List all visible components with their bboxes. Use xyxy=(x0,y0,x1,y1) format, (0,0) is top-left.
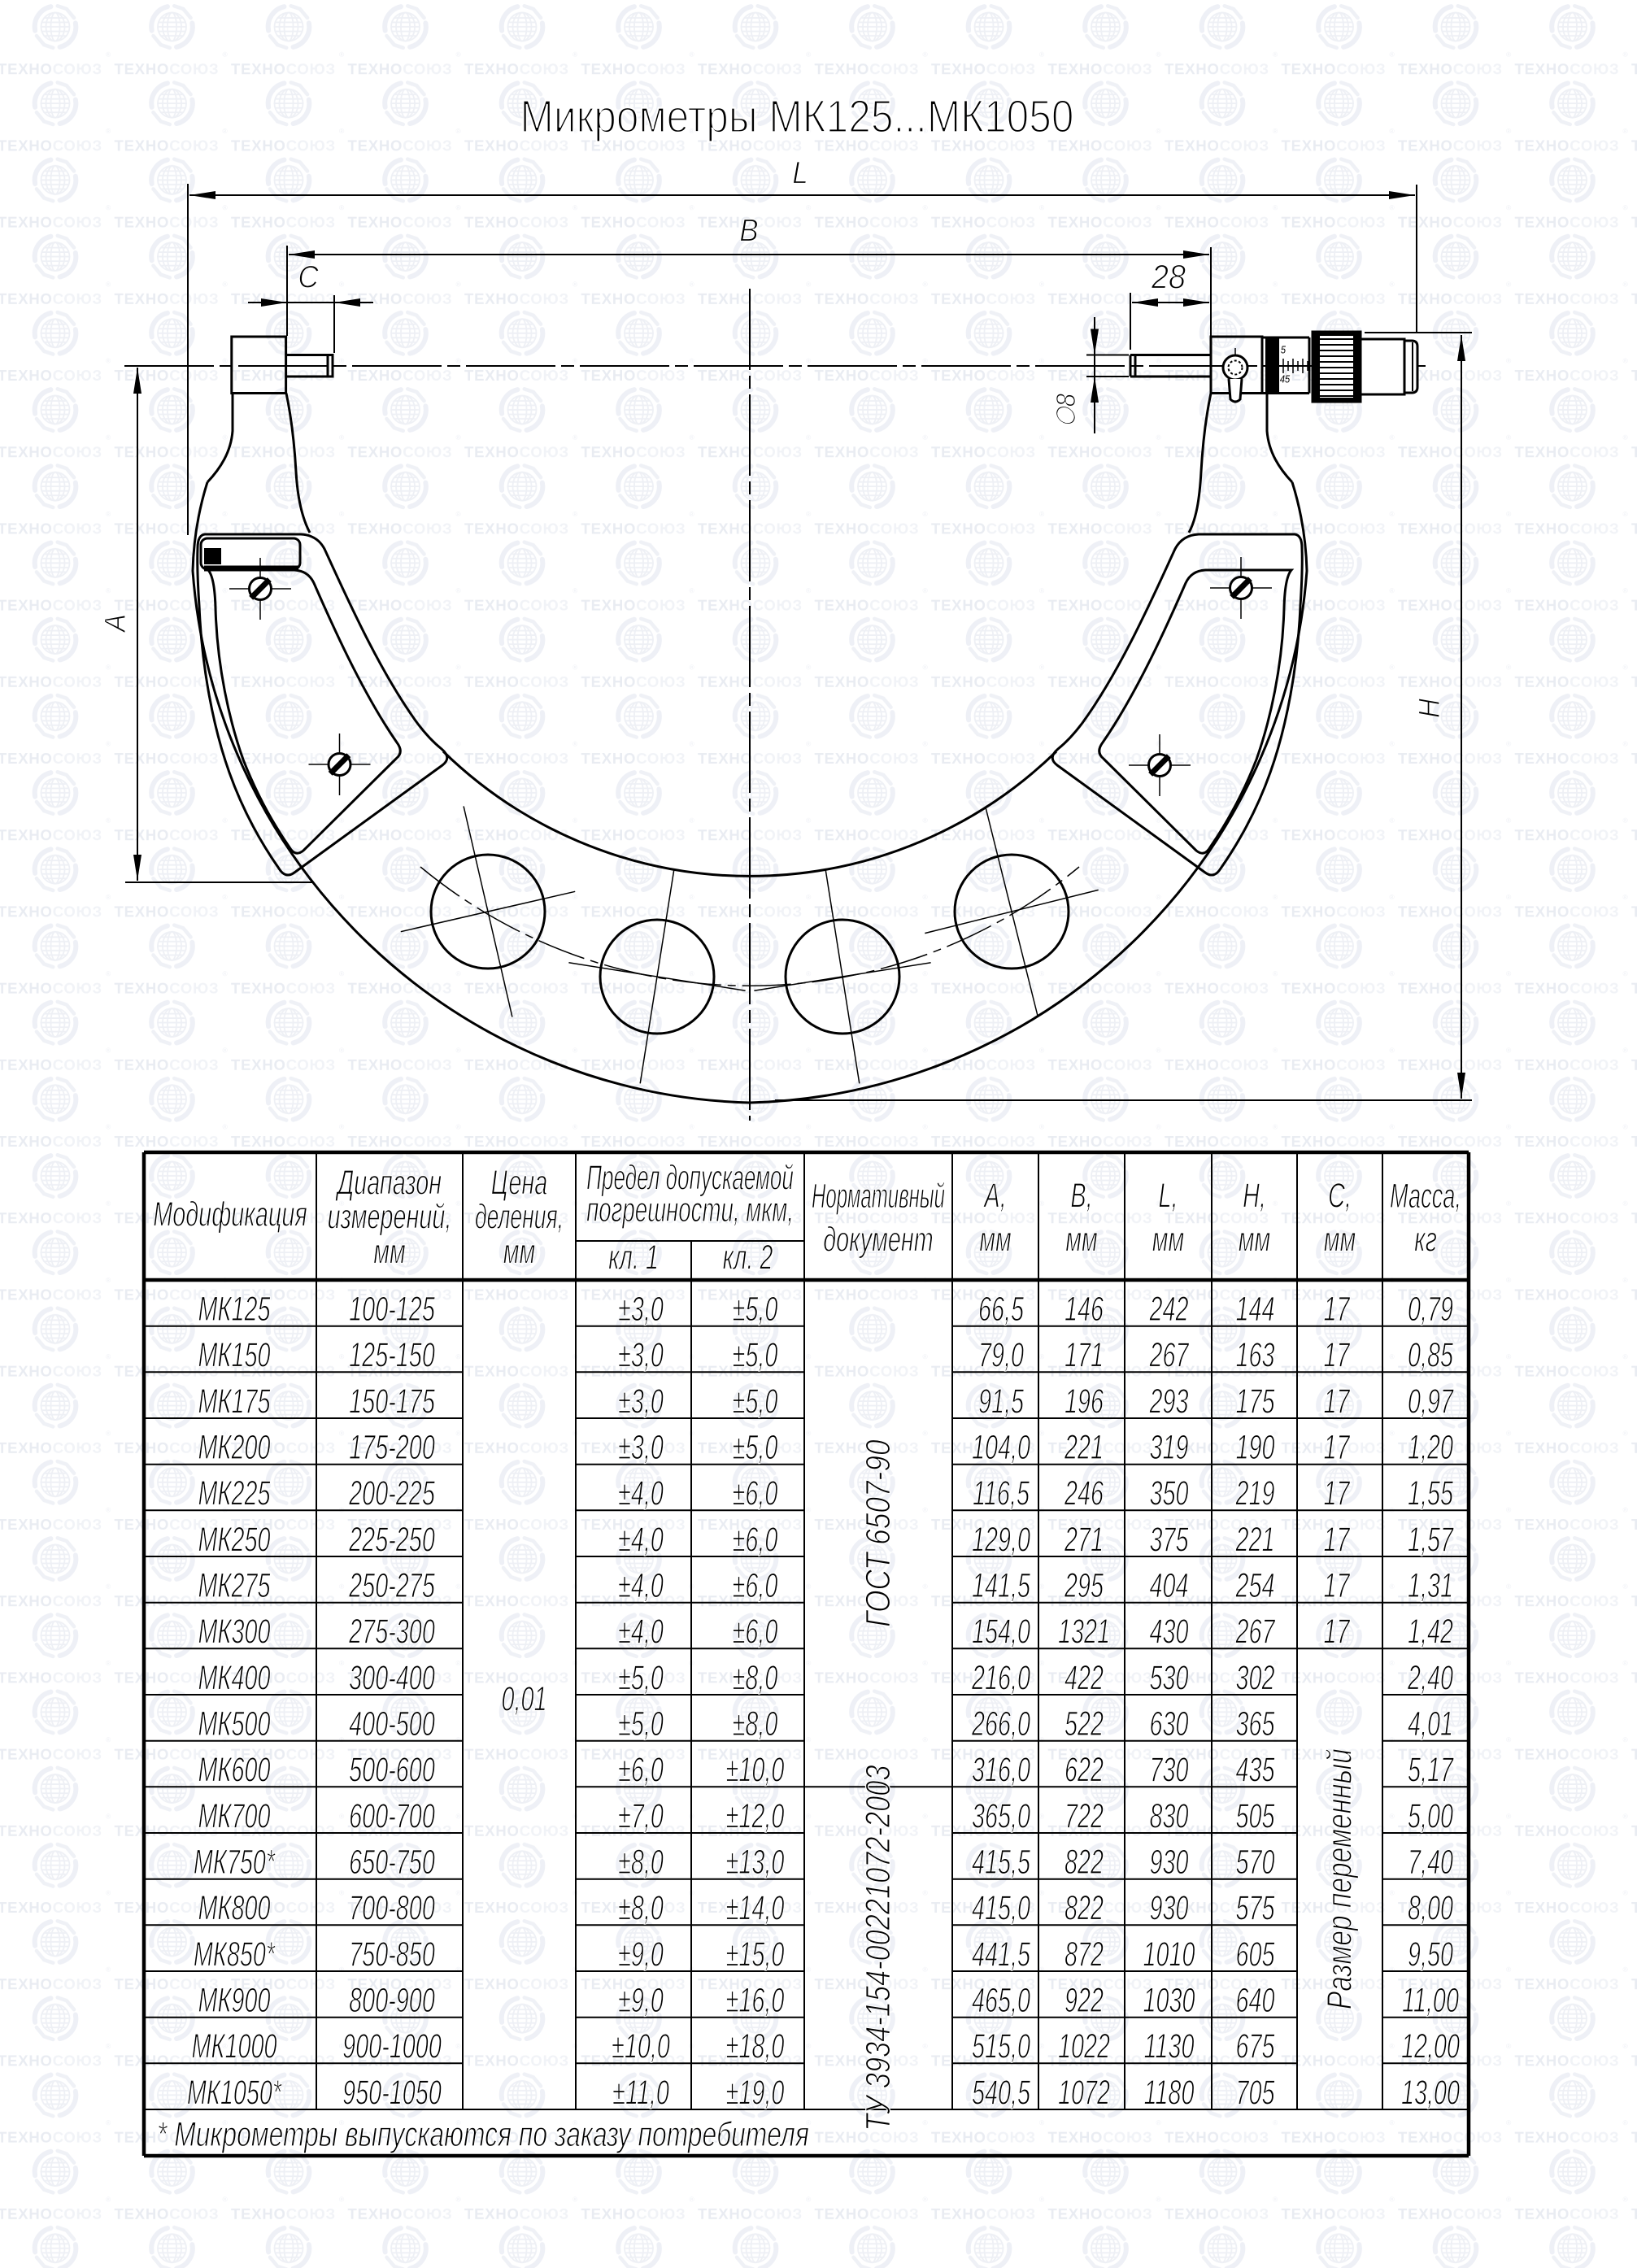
svg-text:0,01: 0,01 xyxy=(501,1679,546,1718)
svg-text:±7,0: ±7,0 xyxy=(618,1796,664,1835)
svg-text:МК225: МК225 xyxy=(198,1474,272,1513)
svg-text:600-700: 600-700 xyxy=(349,1796,435,1835)
svg-text:1072: 1072 xyxy=(1058,2073,1110,2112)
svg-text:±9,0: ±9,0 xyxy=(618,1935,664,1974)
svg-text:мм: мм xyxy=(1239,1220,1270,1259)
svg-text:±8,0: ±8,0 xyxy=(733,1658,778,1697)
svg-text:28: 28 xyxy=(1151,259,1186,296)
svg-text:8,00: 8,00 xyxy=(1408,1888,1454,1927)
svg-text:±19,0: ±19,0 xyxy=(726,2073,785,2112)
svg-text:163: 163 xyxy=(1235,1335,1275,1374)
svg-text:300-400: 300-400 xyxy=(349,1658,435,1697)
svg-text:С,: С, xyxy=(1328,1176,1352,1215)
svg-text:Н,: Н, xyxy=(1243,1176,1266,1215)
svg-text:5,00: 5,00 xyxy=(1408,1796,1454,1835)
svg-text:±8,0: ±8,0 xyxy=(618,1842,664,1881)
svg-text:700-800: 700-800 xyxy=(349,1888,435,1927)
svg-text:В,: В, xyxy=(1070,1176,1092,1215)
svg-text:±16,0: ±16,0 xyxy=(726,1980,785,2019)
svg-text:365,0: 365,0 xyxy=(972,1796,1031,1835)
svg-text:1,57: 1,57 xyxy=(1408,1520,1454,1559)
svg-text:930: 930 xyxy=(1149,1842,1189,1881)
svg-text:293: 293 xyxy=(1149,1382,1189,1421)
svg-text:Нормативный: Нормативный xyxy=(812,1177,945,1216)
svg-text:Размер переменный: Размер переменный xyxy=(1321,1748,1360,2009)
svg-text:221: 221 xyxy=(1235,1520,1275,1559)
svg-text:675: 675 xyxy=(1235,2026,1275,2066)
svg-text:мм: мм xyxy=(503,1232,535,1271)
svg-text:365: 365 xyxy=(1235,1704,1275,1743)
svg-text:200-225: 200-225 xyxy=(348,1474,435,1513)
svg-text:922: 922 xyxy=(1064,1980,1104,2019)
svg-text:302: 302 xyxy=(1235,1658,1274,1697)
svg-text:17: 17 xyxy=(1323,1335,1350,1374)
svg-text:±6,0: ±6,0 xyxy=(733,1565,778,1604)
svg-text:17: 17 xyxy=(1323,1612,1350,1651)
svg-text:* Микрометры выпускаются по за: * Микрометры выпускаются по заказу потре… xyxy=(157,2116,809,2155)
svg-text:9,50: 9,50 xyxy=(1408,1935,1454,1974)
svg-text:66,5: 66,5 xyxy=(978,1289,1025,1328)
svg-text:±4,0: ±4,0 xyxy=(618,1565,664,1604)
svg-text:11,00: 11,00 xyxy=(1402,1980,1459,2019)
svg-text:А,: А, xyxy=(983,1176,1007,1215)
svg-text:±8,0: ±8,0 xyxy=(733,1704,778,1743)
svg-text:822: 822 xyxy=(1064,1888,1104,1927)
svg-text:17: 17 xyxy=(1323,1474,1350,1513)
svg-text:4,01: 4,01 xyxy=(1408,1704,1453,1743)
svg-text:267: 267 xyxy=(1235,1612,1276,1651)
svg-text:196: 196 xyxy=(1064,1382,1104,1421)
svg-text:L: L xyxy=(792,155,808,190)
svg-text:мм: мм xyxy=(373,1232,405,1271)
svg-text:144: 144 xyxy=(1235,1289,1274,1328)
svg-text:±14,0: ±14,0 xyxy=(726,1888,785,1927)
svg-text:730: 730 xyxy=(1149,1750,1189,1789)
svg-text:154,0: 154,0 xyxy=(972,1612,1031,1651)
svg-text:±5,0: ±5,0 xyxy=(733,1427,778,1466)
svg-text:±6,0: ±6,0 xyxy=(618,1750,664,1789)
svg-text:267: 267 xyxy=(1149,1335,1190,1374)
svg-text:150-175: 150-175 xyxy=(349,1382,435,1421)
svg-text:100-125: 100-125 xyxy=(349,1289,435,1328)
svg-text:125-150: 125-150 xyxy=(349,1335,435,1374)
svg-text:415,5: 415,5 xyxy=(972,1842,1031,1881)
svg-text:500-600: 500-600 xyxy=(349,1750,435,1789)
svg-text:1030: 1030 xyxy=(1143,1980,1195,2019)
svg-text:±6,0: ±6,0 xyxy=(733,1520,778,1559)
svg-text:1321: 1321 xyxy=(1058,1612,1110,1651)
svg-text:МК125: МК125 xyxy=(198,1289,272,1328)
svg-text:13,00: 13,00 xyxy=(1401,2073,1461,2112)
svg-text:±4,0: ±4,0 xyxy=(618,1520,664,1559)
svg-text:530: 530 xyxy=(1149,1658,1189,1697)
svg-text:2,40: 2,40 xyxy=(1407,1658,1453,1697)
svg-text:мм: мм xyxy=(1152,1220,1184,1259)
svg-text:17: 17 xyxy=(1323,1289,1350,1328)
svg-text:705: 705 xyxy=(1235,2073,1275,2112)
svg-text:435: 435 xyxy=(1235,1750,1275,1789)
svg-text:L,: L, xyxy=(1158,1176,1178,1215)
svg-text:МК600: МК600 xyxy=(198,1750,272,1789)
svg-text:219: 219 xyxy=(1235,1474,1275,1513)
svg-text:C: C xyxy=(298,259,319,294)
svg-text:5,17: 5,17 xyxy=(1408,1750,1454,1789)
svg-text:1,31: 1,31 xyxy=(1408,1565,1453,1604)
svg-text:190: 190 xyxy=(1235,1427,1275,1466)
svg-text:H: H xyxy=(1413,698,1447,718)
svg-text:225-250: 225-250 xyxy=(348,1520,435,1559)
svg-text:175: 175 xyxy=(1235,1382,1275,1421)
svg-text:мм: мм xyxy=(1324,1220,1356,1259)
svg-text:±12,0: ±12,0 xyxy=(726,1796,785,1835)
svg-text:МК1050*: МК1050* xyxy=(187,2073,283,2112)
svg-text:319: 319 xyxy=(1149,1427,1188,1466)
svg-text:МК400: МК400 xyxy=(198,1658,272,1697)
svg-text:17: 17 xyxy=(1323,1520,1350,1559)
svg-text:146: 146 xyxy=(1064,1289,1104,1328)
svg-text:254: 254 xyxy=(1235,1565,1275,1604)
svg-text:±4,0: ±4,0 xyxy=(618,1474,664,1513)
svg-text:A: A xyxy=(99,614,133,633)
svg-text:документ: документ xyxy=(823,1220,934,1259)
svg-text:465,0: 465,0 xyxy=(972,1980,1031,2019)
svg-text:±5,0: ±5,0 xyxy=(733,1289,778,1328)
svg-text:950-1050: 950-1050 xyxy=(342,2073,442,2112)
svg-text:0,97: 0,97 xyxy=(1408,1382,1454,1421)
svg-text:мм: мм xyxy=(979,1220,1011,1259)
svg-text:±8,0: ±8,0 xyxy=(618,1888,664,1927)
svg-text:±5,0: ±5,0 xyxy=(733,1335,778,1374)
svg-text:±9,0: ±9,0 xyxy=(618,1980,664,2019)
svg-text:МК500: МК500 xyxy=(198,1704,272,1743)
svg-text:МК175: МК175 xyxy=(198,1382,272,1421)
svg-text:17: 17 xyxy=(1323,1382,1350,1421)
svg-text:±3,0: ±3,0 xyxy=(618,1427,664,1466)
svg-text:кг: кг xyxy=(1414,1220,1437,1259)
svg-text:1,42: 1,42 xyxy=(1408,1612,1453,1651)
svg-text:∅8: ∅8 xyxy=(1051,393,1082,428)
svg-text:104,0: 104,0 xyxy=(972,1427,1031,1466)
svg-text:МК200: МК200 xyxy=(198,1427,272,1466)
svg-text:МК300: МК300 xyxy=(198,1612,272,1651)
svg-text:ТУ 3934-154-00221072-2003: ТУ 3934-154-00221072-2003 xyxy=(859,1765,897,2131)
svg-text:7,40: 7,40 xyxy=(1408,1842,1454,1881)
svg-text:640: 640 xyxy=(1235,1980,1275,2019)
svg-text:МК700: МК700 xyxy=(198,1796,272,1835)
svg-text:МК750*: МК750* xyxy=(194,1842,276,1881)
svg-text:погрешности, мкм,: погрешности, мкм, xyxy=(586,1190,794,1230)
svg-text:116,5: 116,5 xyxy=(973,1474,1030,1513)
svg-text:316,0: 316,0 xyxy=(972,1750,1031,1789)
svg-text:17: 17 xyxy=(1323,1565,1350,1604)
svg-text:B: B xyxy=(739,212,758,248)
svg-text:1,20: 1,20 xyxy=(1408,1427,1454,1466)
svg-text:±11,0: ±11,0 xyxy=(612,2073,669,2112)
svg-text:1180: 1180 xyxy=(1144,2073,1195,2112)
svg-text:Цена: Цена xyxy=(491,1163,547,1202)
svg-text:350: 350 xyxy=(1149,1474,1189,1513)
svg-text:522: 522 xyxy=(1064,1704,1104,1743)
svg-text:МК900: МК900 xyxy=(198,1980,272,2019)
svg-text:872: 872 xyxy=(1064,1935,1104,1974)
svg-text:кл. 2: кл. 2 xyxy=(723,1238,773,1277)
svg-text:422: 422 xyxy=(1064,1658,1104,1697)
svg-text:МК1000: МК1000 xyxy=(191,2026,277,2066)
svg-text:441,5: 441,5 xyxy=(972,1935,1031,1974)
svg-text:±4,0: ±4,0 xyxy=(618,1612,664,1651)
svg-text:МК275: МК275 xyxy=(198,1565,272,1604)
svg-text:±3,0: ±3,0 xyxy=(618,1382,664,1421)
svg-text:722: 722 xyxy=(1064,1796,1104,1835)
svg-text:±18,0: ±18,0 xyxy=(726,2026,785,2066)
svg-text:375: 375 xyxy=(1149,1520,1189,1559)
svg-text:1130: 1130 xyxy=(1144,2026,1195,2066)
svg-text:45: 45 xyxy=(1280,372,1291,385)
svg-text:822: 822 xyxy=(1064,1842,1104,1881)
svg-text:деления,: деления, xyxy=(475,1197,564,1236)
svg-text:505: 505 xyxy=(1235,1796,1275,1835)
svg-text:0,85: 0,85 xyxy=(1408,1335,1454,1374)
svg-text:415,0: 415,0 xyxy=(972,1888,1031,1927)
svg-text:400-500: 400-500 xyxy=(349,1704,435,1743)
svg-text:измерений,: измерений, xyxy=(328,1197,452,1236)
svg-text:±10,0: ±10,0 xyxy=(612,2026,670,2066)
svg-text:129,0: 129,0 xyxy=(972,1520,1031,1559)
svg-text:МК850*: МК850* xyxy=(194,1935,276,1974)
svg-text:ГОСТ 6507-90: ГОСТ 6507-90 xyxy=(859,1439,898,1627)
svg-text:0,79: 0,79 xyxy=(1408,1289,1453,1328)
svg-text:275-300: 275-300 xyxy=(348,1612,435,1651)
svg-text:Модификация: Модификация xyxy=(153,1195,307,1234)
svg-text:±15,0: ±15,0 xyxy=(726,1935,785,1974)
svg-text:141,5: 141,5 xyxy=(972,1565,1031,1604)
svg-text:430: 430 xyxy=(1149,1612,1189,1651)
svg-text:171: 171 xyxy=(1064,1335,1104,1374)
svg-text:570: 570 xyxy=(1235,1842,1275,1881)
svg-text:Масса,: Масса, xyxy=(1390,1176,1461,1216)
svg-text:242: 242 xyxy=(1149,1289,1189,1328)
svg-text:540,5: 540,5 xyxy=(972,2073,1031,2112)
svg-text:МК800: МК800 xyxy=(198,1888,272,1927)
svg-text:930: 930 xyxy=(1149,1888,1189,1927)
svg-text:216,0: 216,0 xyxy=(971,1658,1030,1697)
svg-text:±5,0: ±5,0 xyxy=(618,1658,664,1697)
svg-text:±3,0: ±3,0 xyxy=(618,1335,664,1374)
svg-text:±6,0: ±6,0 xyxy=(733,1474,778,1513)
svg-text:12,00: 12,00 xyxy=(1401,2026,1461,2066)
svg-text:мм: мм xyxy=(1065,1220,1097,1259)
svg-text:515,0: 515,0 xyxy=(972,2026,1031,2066)
svg-text:630: 630 xyxy=(1149,1704,1189,1743)
svg-text:±6,0: ±6,0 xyxy=(733,1612,778,1651)
svg-text:1022: 1022 xyxy=(1058,2026,1110,2066)
svg-text:±5,0: ±5,0 xyxy=(733,1382,778,1421)
svg-text:622: 622 xyxy=(1064,1750,1104,1789)
svg-text:17: 17 xyxy=(1323,1427,1350,1466)
svg-text:1010: 1010 xyxy=(1143,1935,1195,1974)
svg-text:Микрометры МК125...МК1050: Микрометры МК125...МК1050 xyxy=(520,92,1073,143)
svg-text:575: 575 xyxy=(1235,1888,1275,1927)
svg-text:79,0: 79,0 xyxy=(978,1335,1025,1374)
svg-text:кл. 1: кл. 1 xyxy=(608,1238,659,1277)
svg-text:МК250: МК250 xyxy=(198,1520,272,1559)
svg-text:5: 5 xyxy=(1281,343,1286,355)
svg-text:МК150: МК150 xyxy=(198,1335,272,1374)
svg-text:175-200: 175-200 xyxy=(349,1427,435,1466)
svg-text:900-1000: 900-1000 xyxy=(342,2026,442,2066)
svg-text:91,5: 91,5 xyxy=(978,1382,1025,1421)
svg-text:650-750: 650-750 xyxy=(349,1842,435,1881)
svg-text:750-850: 750-850 xyxy=(349,1935,435,1974)
svg-text:266,0: 266,0 xyxy=(971,1704,1030,1743)
svg-text:±13,0: ±13,0 xyxy=(726,1842,785,1881)
svg-text:1,55: 1,55 xyxy=(1408,1474,1454,1513)
svg-text:800-900: 800-900 xyxy=(349,1980,435,2019)
svg-text:404: 404 xyxy=(1149,1565,1188,1604)
svg-text:246: 246 xyxy=(1064,1474,1104,1513)
svg-text:±10,0: ±10,0 xyxy=(726,1750,785,1789)
svg-text:±5,0: ±5,0 xyxy=(618,1704,664,1743)
svg-text:271: 271 xyxy=(1064,1520,1104,1559)
svg-text:221: 221 xyxy=(1064,1427,1104,1466)
svg-text:±3,0: ±3,0 xyxy=(618,1289,664,1328)
svg-text:295: 295 xyxy=(1064,1565,1104,1604)
svg-text:605: 605 xyxy=(1235,1935,1275,1974)
svg-text:Диапазон: Диапазон xyxy=(335,1163,442,1202)
svg-text:830: 830 xyxy=(1149,1796,1189,1835)
svg-text:250-275: 250-275 xyxy=(348,1565,435,1604)
